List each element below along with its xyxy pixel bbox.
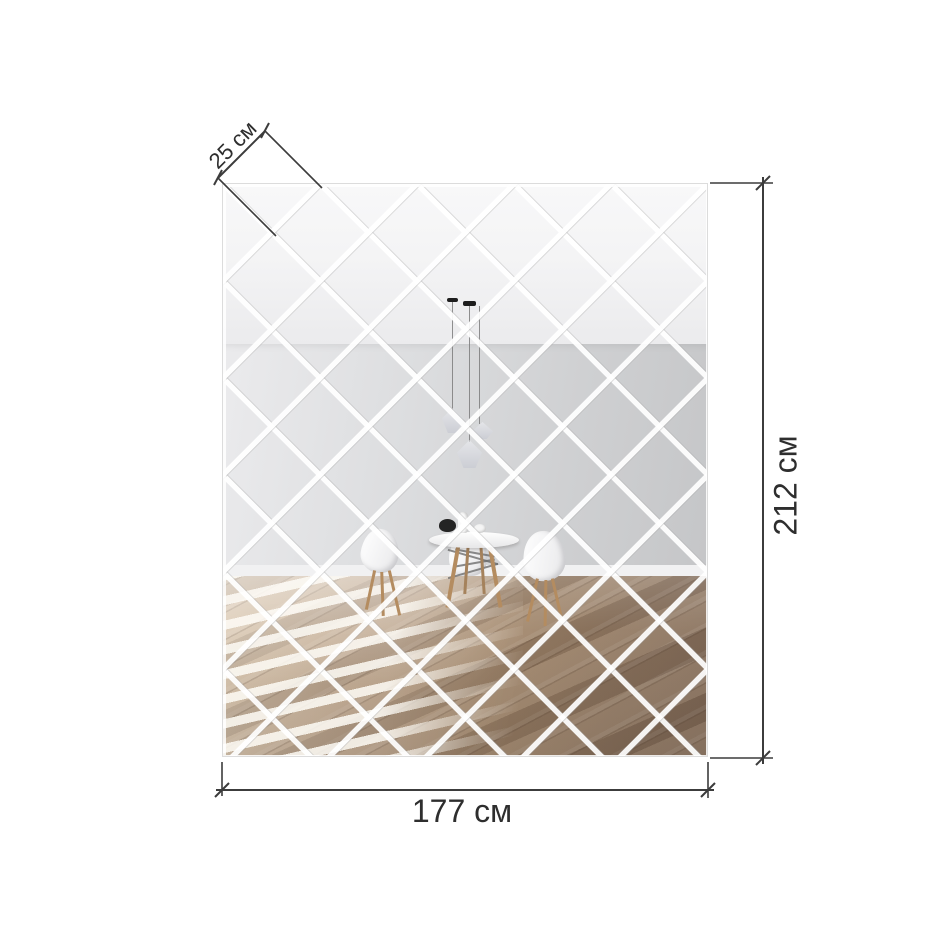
mirror-panel [222, 183, 708, 757]
dimension-height [710, 176, 773, 765]
tile-size-label: 25 см [185, 97, 281, 193]
height-label: 212 см [768, 416, 805, 556]
page: { "diagram": { "type": "product-dimensio… [0, 0, 940, 940]
bevel-grid [223, 184, 708, 757]
width-label: 177 см [392, 793, 532, 830]
